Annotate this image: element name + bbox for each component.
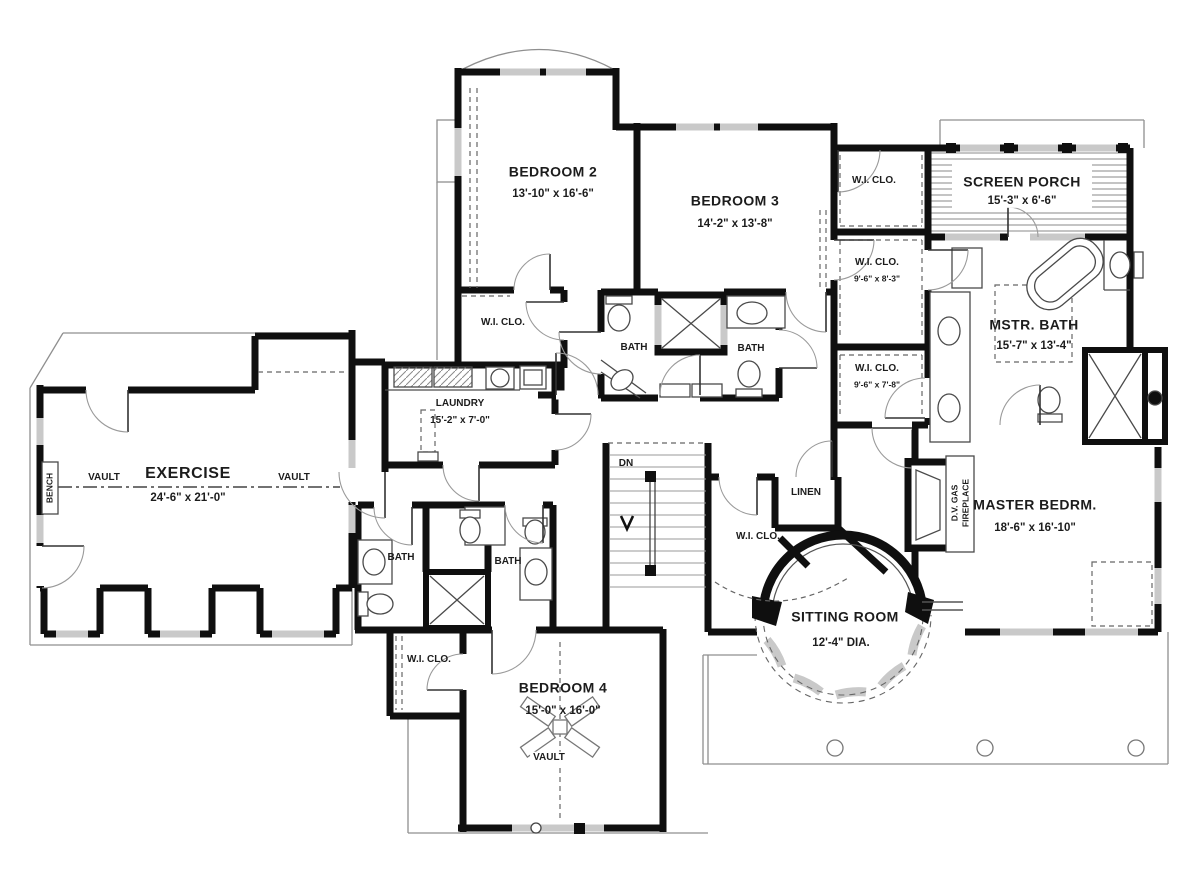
room-label-bedroom2: BEDROOM 2 <box>509 163 597 181</box>
bath-label-lower-left: BATH <box>387 552 414 565</box>
room-dims-bedroom2: 13'-10" x 16'-6" <box>512 187 594 201</box>
closet-dims-wic-83: 9'-6" x 8'-3" <box>854 274 900 285</box>
room-label-bedroom4: BEDROOM 4 <box>519 679 607 697</box>
bath-label-upper-left: BATH <box>620 342 647 355</box>
dryer <box>434 367 472 387</box>
closet-label-wic-hall: W.I. CLO. <box>736 531 780 544</box>
room-dims-master-bedroom: 18'-6" x 16'-10" <box>994 521 1076 535</box>
room-label-laundry: LAUNDRY <box>436 398 485 411</box>
shower-glass <box>662 299 720 348</box>
shower-glass <box>1089 354 1141 438</box>
room-label-bedroom3: BEDROOM 3 <box>691 192 779 210</box>
floor-plan-page: BEDROOM 2 13'-10" x 16'-6" BEDROOM 3 14'… <box>0 0 1200 873</box>
deck-column <box>1128 740 1144 756</box>
room-label-master-bath: MSTR. BATH <box>989 316 1078 334</box>
room-label-screen-porch: SCREEN PORCH <box>960 173 1084 191</box>
cabinet <box>952 248 982 288</box>
floor-plan-drawing <box>0 0 1200 873</box>
room-dims-bedroom4: 15'-0" x 16'-0" <box>525 704 600 718</box>
sink <box>607 366 637 395</box>
toilet-tank <box>736 389 762 397</box>
laundry-sink <box>491 369 509 387</box>
sink <box>938 394 960 422</box>
vault-label-right: VAULT <box>275 472 313 485</box>
sink <box>737 302 767 324</box>
firebox <box>916 470 940 540</box>
fireplace-label: D.V. GAS FIREPLACE <box>949 479 970 527</box>
vault-label-bedroom4: VAULT <box>530 752 568 765</box>
counter <box>660 384 690 397</box>
room-dims-master-bath: 15'-7" x 13'-4" <box>996 339 1071 353</box>
bath-label-lower-right: BATH <box>494 556 521 569</box>
room-dims-laundry: 15'-2" x 7'-0" <box>430 415 490 428</box>
toilet <box>367 594 393 614</box>
closet-label-wic-top: W.I. CLO. <box>852 175 896 188</box>
sink <box>363 549 385 575</box>
appliance-inner <box>524 370 542 385</box>
deck-column <box>977 740 993 756</box>
room-dims-sitting-room: 12'-4" DIA. <box>812 636 869 650</box>
toilet <box>460 517 480 543</box>
counter <box>692 384 722 397</box>
toilet <box>608 305 630 331</box>
window-post <box>531 823 541 833</box>
toilet-tank <box>606 296 632 304</box>
closet-dims-wic-78: 9'-6" x 7'-8" <box>854 380 900 391</box>
stairs <box>610 455 706 587</box>
toilet <box>738 361 760 387</box>
toilet <box>1038 387 1060 413</box>
fireplace-label-line1: D.V. GAS <box>949 479 960 527</box>
room-dims-bedroom3: 14'-2" x 13'-8" <box>697 217 772 231</box>
closet-label-wic-bedroom4: W.I. CLO. <box>407 654 451 667</box>
stairs-dn-label: DN <box>619 458 633 471</box>
room-dims-exercise: 24'-6" x 21'-0" <box>147 491 228 505</box>
toilet <box>1110 252 1130 278</box>
toilet-tank <box>1038 414 1062 422</box>
toilet-tank <box>1134 252 1143 278</box>
room-label-exercise: EXERCISE <box>142 464 234 484</box>
washer <box>394 367 432 387</box>
deck-column <box>827 740 843 756</box>
closet-label-wic-bedroom2: W.I. CLO. <box>481 317 525 330</box>
vault-label-left: VAULT <box>85 472 123 485</box>
sink <box>938 317 960 345</box>
screen-porch-deck <box>827 150 1144 756</box>
ironing-board-base <box>418 452 438 461</box>
bench-label: BENCH <box>45 473 56 503</box>
room-dims-screen-porch: 15'-3" x 6'-6" <box>985 194 1060 208</box>
fireplace-label-line2: FIREPLACE <box>960 479 971 527</box>
closet-label-wic-83: W.I. CLO. <box>855 257 899 270</box>
bath-label-upper-right: BATH <box>737 343 764 356</box>
room-label-sitting-room: SITTING ROOM <box>791 608 898 626</box>
bathtub <box>1019 230 1112 318</box>
shower-glass <box>430 576 484 624</box>
room-label-master-bedroom: MASTER BEDRM. <box>973 496 1096 514</box>
sink <box>525 559 547 585</box>
shower-drain <box>1148 391 1162 405</box>
closet-label-wic-78: W.I. CLO. <box>855 363 899 376</box>
closet-label-linen: LINEN <box>791 487 821 500</box>
porch-posts <box>574 143 1128 834</box>
